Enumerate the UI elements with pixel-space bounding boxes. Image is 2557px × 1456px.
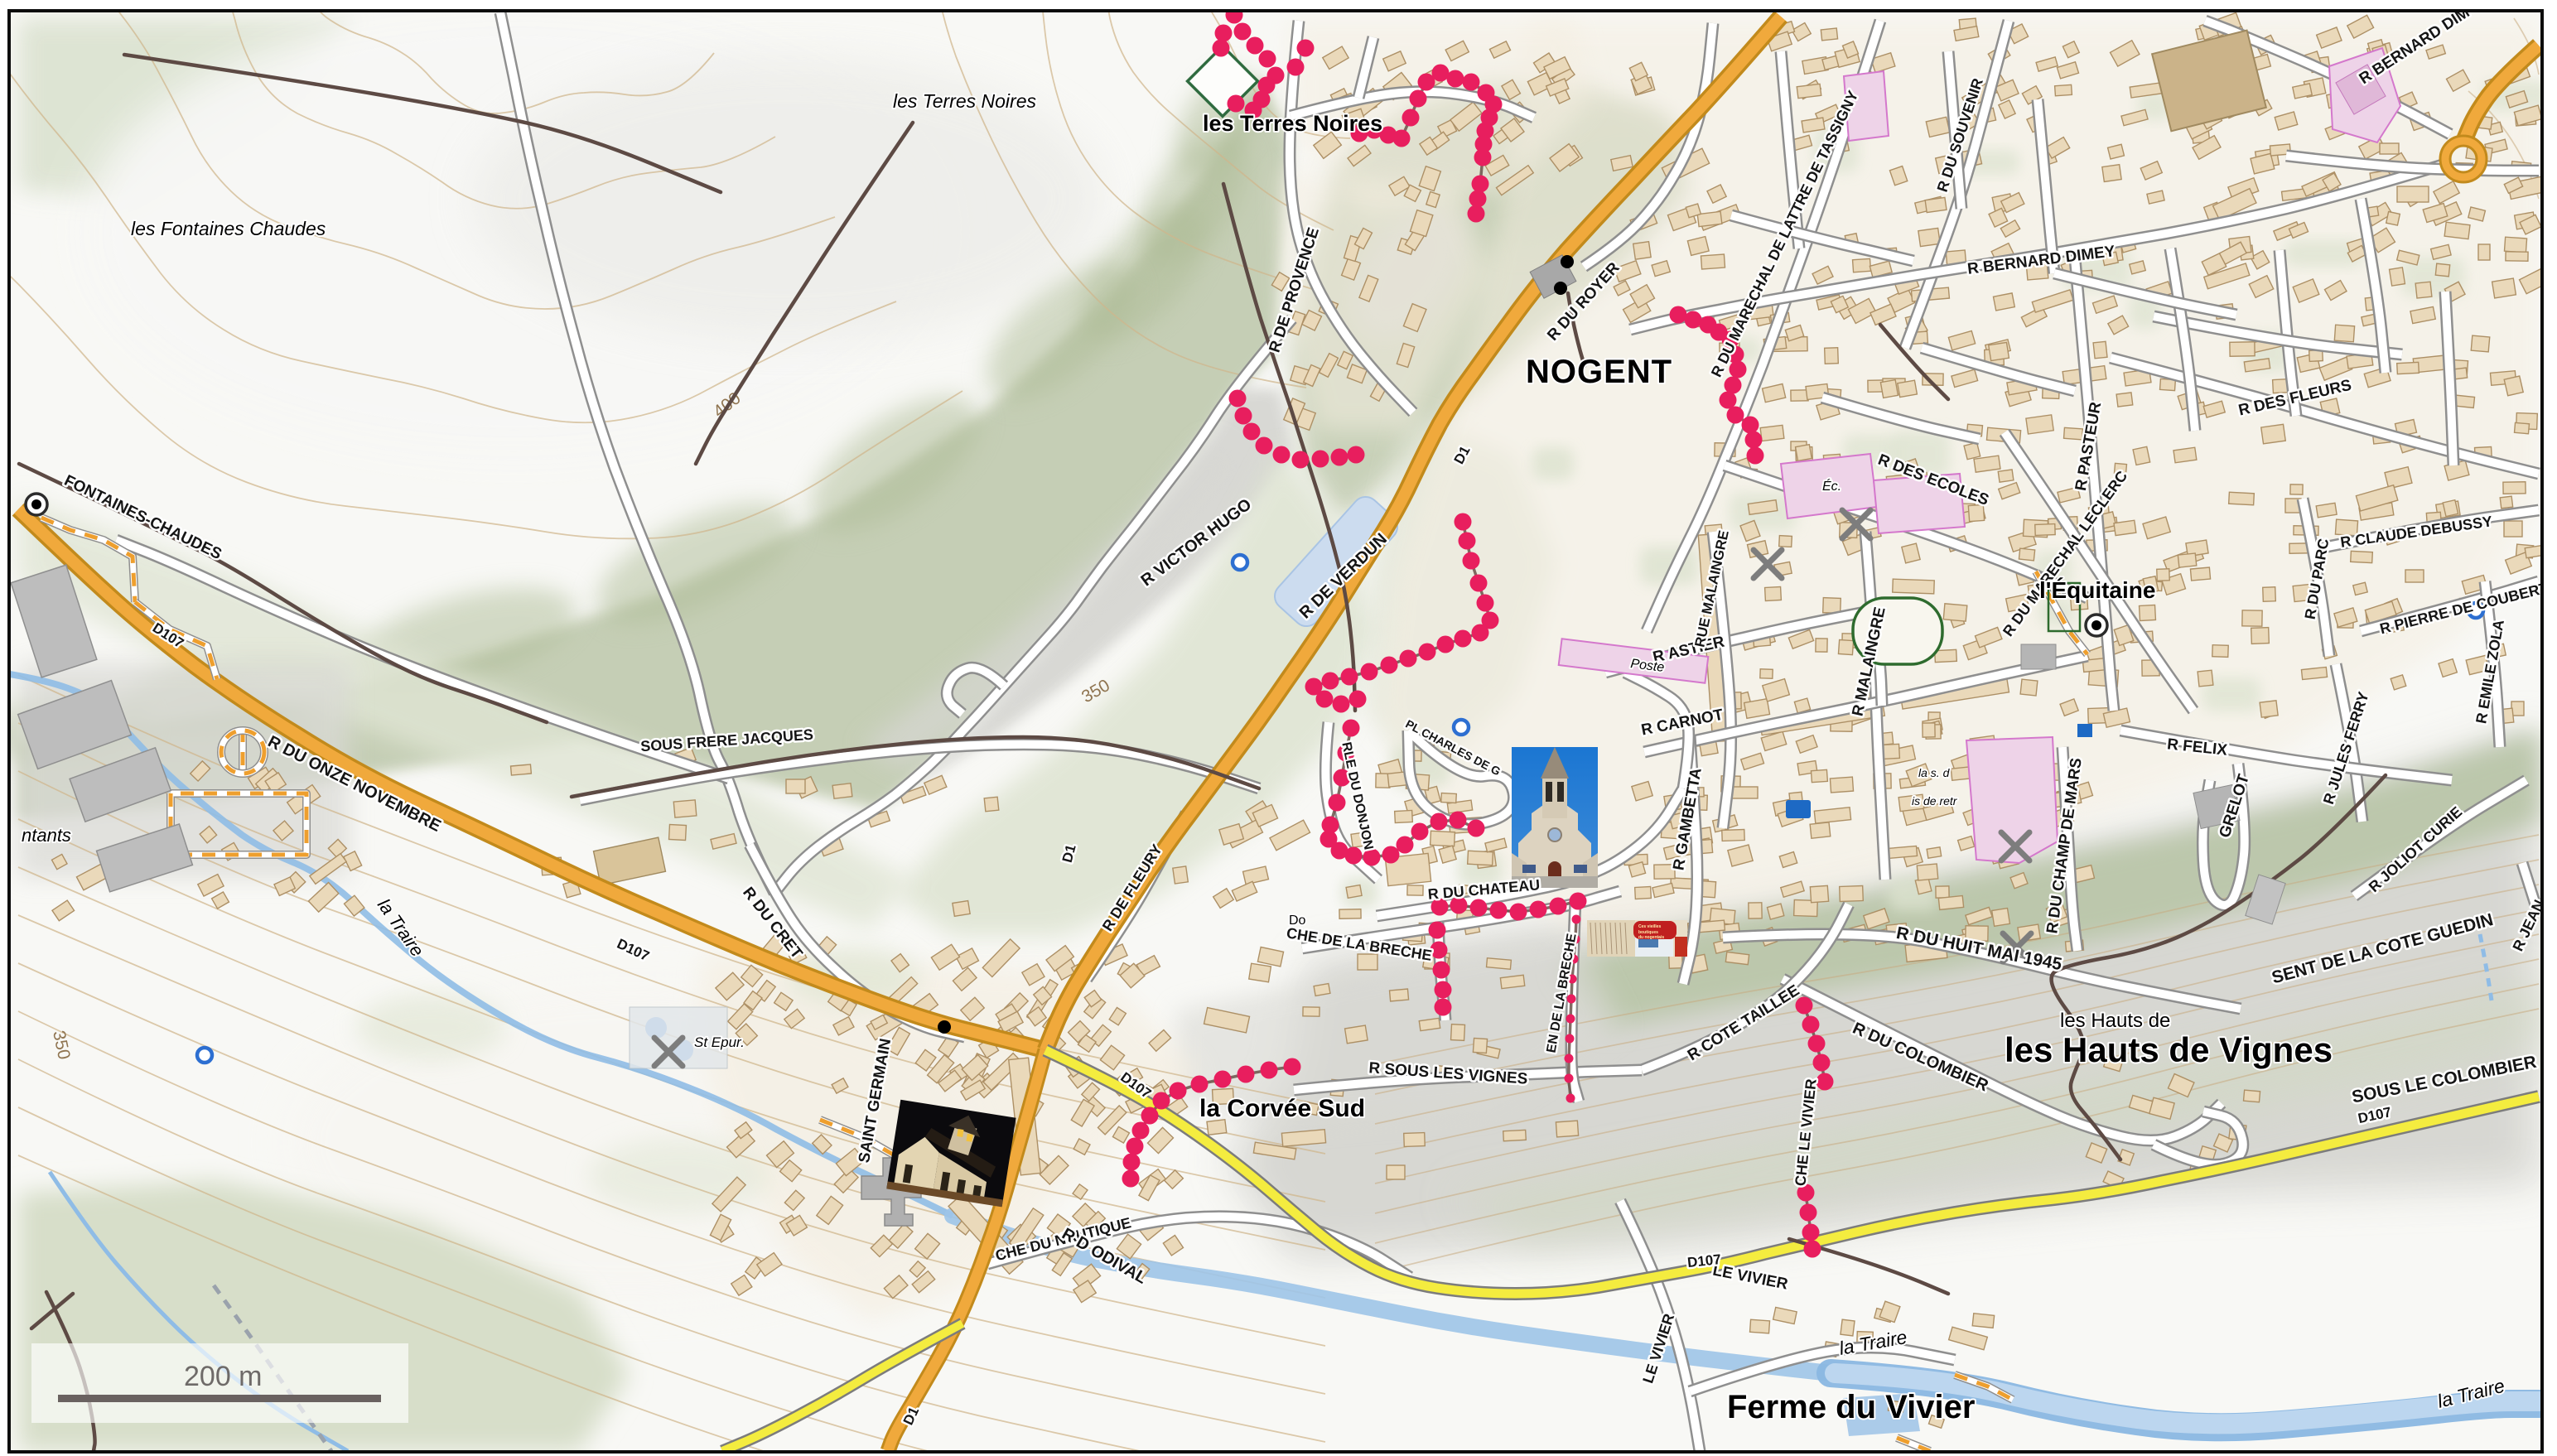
svg-text:les Terres Noires: les Terres Noires (1203, 111, 1382, 136)
svg-text:les Hauts de: les Hauts de (2060, 1010, 2170, 1032)
svg-text:Ces vieilles: Ces vieilles (1638, 924, 1661, 929)
svg-text:du nogentais: du nogentais (1638, 935, 1664, 940)
svg-text:Do: Do (1289, 914, 1306, 928)
svg-text:la s. d: la s. d (1918, 766, 1951, 779)
svg-text:les Terres Noires: les Terres Noires (893, 90, 1036, 112)
svg-text:l'Équitaine: l'Équitaine (2039, 577, 2155, 603)
svg-text:is de retr: is de retr (1912, 794, 1958, 808)
svg-text:St Epur.: St Epur. (694, 1034, 745, 1050)
svg-text:NOGENT: NOGENT (1526, 354, 1672, 390)
svg-text:200 m: 200 m (184, 1361, 263, 1392)
svg-text:Ferme du Vivier: Ferme du Vivier (1727, 1389, 1975, 1425)
svg-text:les Fontaines Chaudes: les Fontaines Chaudes (131, 218, 326, 239)
svg-text:les Hauts de Vignes: les Hauts de Vignes (2005, 1030, 2333, 1069)
svg-text:la Corvée Sud: la Corvée Sud (1199, 1095, 1365, 1122)
svg-text:Éc.: Éc. (1822, 478, 1841, 494)
svg-text:ntants: ntants (22, 825, 71, 846)
